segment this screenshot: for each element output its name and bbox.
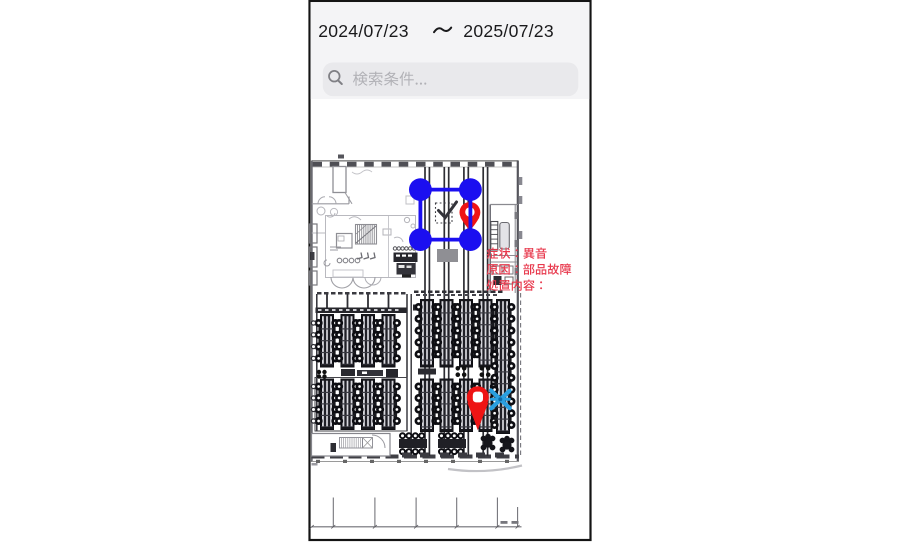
svg-text:2025/07/23: 2025/07/23: [463, 21, 554, 41]
svg-text:2024/07/23: 2024/07/23: [318, 21, 409, 41]
